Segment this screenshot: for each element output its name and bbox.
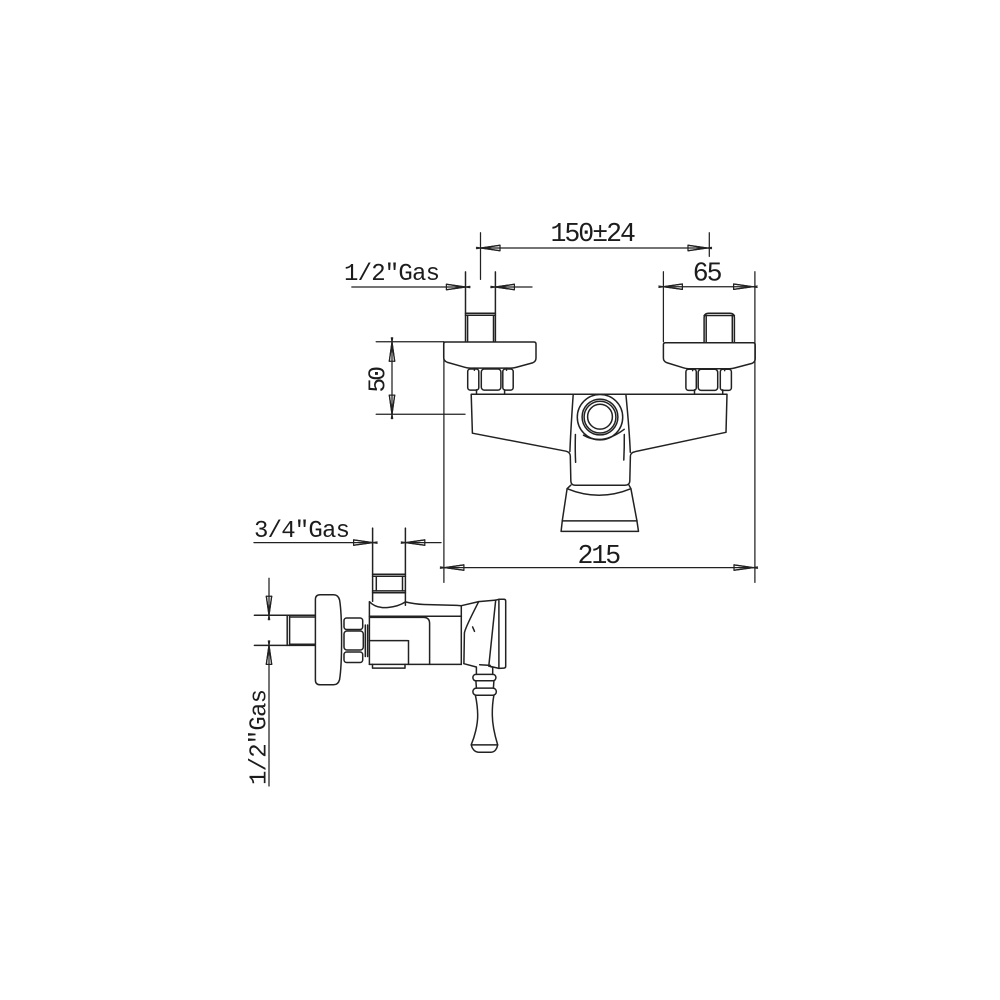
svg-text:150±24: 150±24 xyxy=(551,219,636,249)
svg-text:50: 50 xyxy=(366,367,393,393)
svg-text:3/4″Gas: 3/4″Gas xyxy=(254,518,349,545)
svg-text:65: 65 xyxy=(693,259,722,289)
svg-text:1/2″Gas: 1/2″Gas xyxy=(344,261,439,288)
svg-text:215: 215 xyxy=(578,541,621,571)
